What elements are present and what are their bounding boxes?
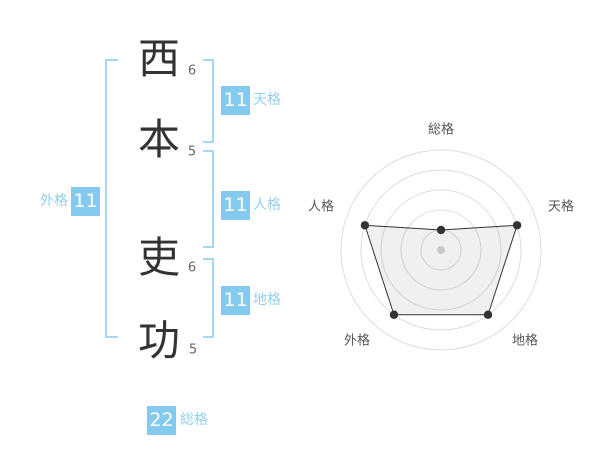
radar-point-天格 bbox=[513, 221, 521, 229]
name-analysis-page: 西 本 吏 功 6 5 6 5 11 天格 11 人格 11 地格 外格 11 … bbox=[0, 0, 600, 470]
radar-axis-label-外格: 外格 bbox=[344, 333, 370, 349]
radar-point-地格 bbox=[484, 311, 492, 319]
radar-chart: 総格天格地格外格人格 bbox=[0, 0, 600, 470]
radar-data-polygon bbox=[365, 225, 517, 314]
radar-point-人格 bbox=[361, 221, 369, 229]
radar-point-総格 bbox=[437, 226, 445, 234]
radar-center-dot bbox=[437, 246, 445, 254]
radar-axis-label-総格: 総格 bbox=[428, 122, 454, 138]
radar-point-外格 bbox=[390, 311, 398, 319]
radar-axis-label-天格: 天格 bbox=[548, 199, 574, 215]
radar-axis-label-人格: 人格 bbox=[308, 199, 334, 215]
radar-axis-label-地格: 地格 bbox=[512, 333, 538, 349]
